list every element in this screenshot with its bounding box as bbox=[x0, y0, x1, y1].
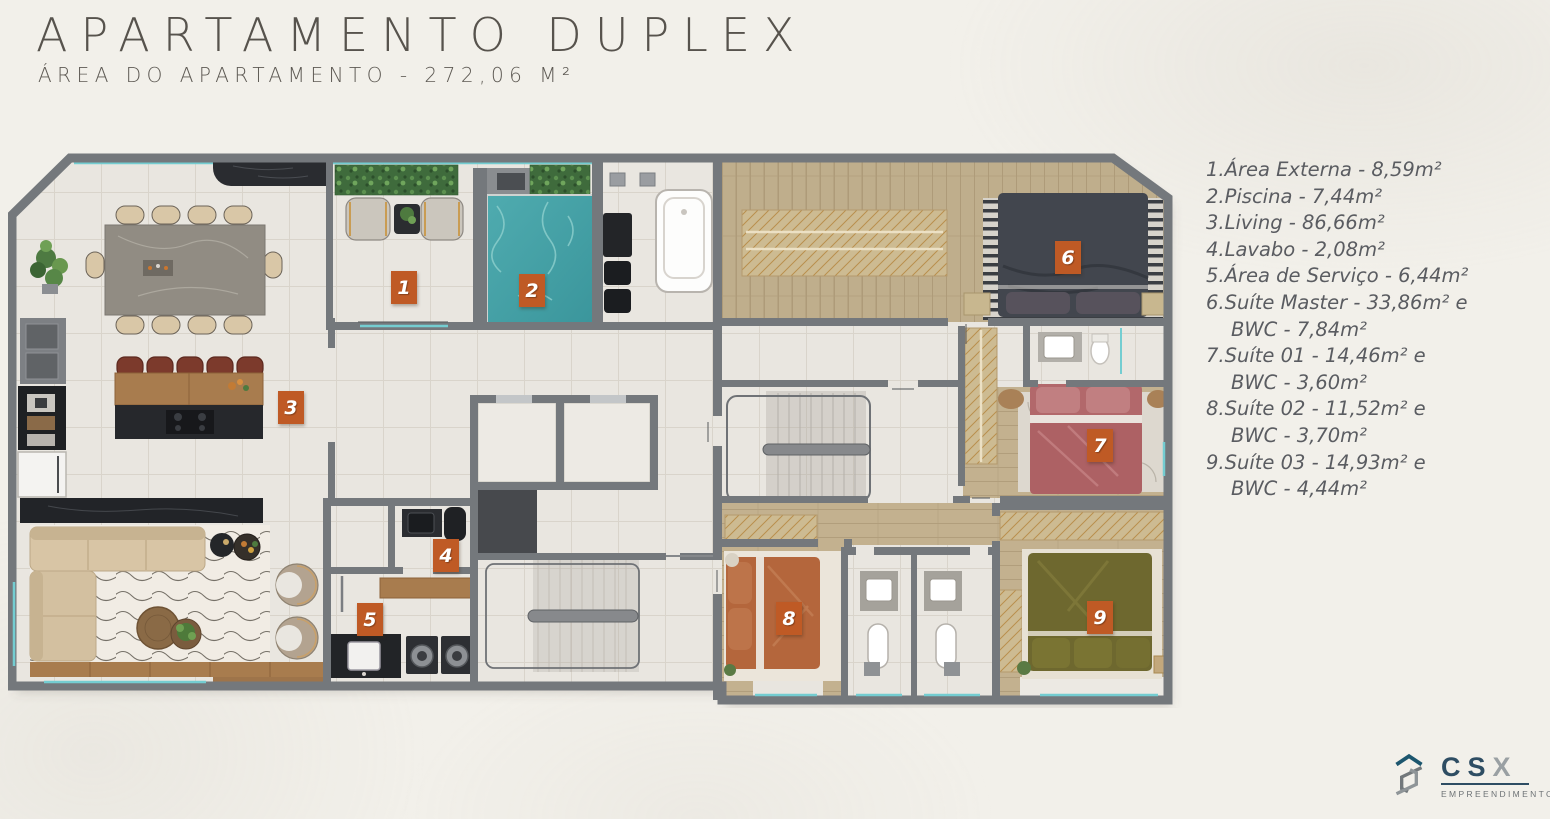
csx-logo-x: X bbox=[1493, 752, 1518, 782]
csx-logo-brand: CSX bbox=[1441, 753, 1550, 781]
room-badge-1: 1 bbox=[391, 271, 417, 304]
floor-plan: 1 2 3 4 5 6 7 8 9 bbox=[8, 146, 1183, 708]
room-badge-3: 3 bbox=[278, 391, 304, 424]
kitchen-island bbox=[115, 357, 263, 439]
room-badge-5: 5 bbox=[357, 603, 383, 636]
room-badge-7: 7 bbox=[1087, 429, 1113, 462]
legend-line-bwc: BWC - 4,44m² bbox=[1206, 476, 1550, 503]
csx-logo-rule bbox=[1441, 783, 1529, 785]
legend-line: 1.Área Externa - 8,59m² bbox=[1206, 157, 1550, 184]
room-legend: 1.Área Externa - 8,59m²2.Piscina - 7,44m… bbox=[1206, 157, 1550, 503]
room-badge-6: 6 bbox=[1055, 241, 1081, 274]
room-badge-2: 2 bbox=[519, 274, 545, 307]
csx-logo: CSX EMPREENDIMENTOS bbox=[1386, 750, 1550, 802]
legend-line: 3.Living - 86,66m² bbox=[1206, 210, 1550, 237]
page-title: APARTAMENTO DUPLEX bbox=[36, 8, 807, 62]
room-badge-9: 9 bbox=[1087, 601, 1113, 634]
legend-list: 1.Área Externa - 8,59m²2.Piscina - 7,44m… bbox=[1206, 157, 1550, 503]
sofa-lounge bbox=[30, 525, 270, 665]
lavabo bbox=[402, 507, 466, 541]
legend-line: 6.Suíte Master - 33,86m² e bbox=[1206, 290, 1550, 317]
page-subtitle: ÁREA DO APARTAMENTO - 272,06 M² bbox=[38, 63, 576, 87]
legend-line: 5.Área de Serviço - 6,44m² bbox=[1206, 263, 1550, 290]
legend-line-bwc: BWC - 7,84m² bbox=[1206, 317, 1550, 344]
legend-line: 8.Suíte 02 - 11,52m² e bbox=[1206, 396, 1550, 423]
floor-plan-drawing bbox=[8, 146, 1183, 708]
dining-set bbox=[86, 206, 282, 334]
legend-line: 9.Suíte 03 - 14,93m² e bbox=[1206, 450, 1550, 477]
csx-logo-cs: CS bbox=[1441, 752, 1493, 782]
legend-line: 7.Suíte 01 - 14,46m² e bbox=[1206, 343, 1550, 370]
room-badge-8: 8 bbox=[776, 602, 802, 635]
legend-line-bwc: BWC - 3,60m² bbox=[1206, 370, 1550, 397]
legend-line-bwc: BWC - 3,70m² bbox=[1206, 423, 1550, 450]
suite-03 bbox=[994, 512, 1168, 679]
legend-line: 4.Lavabo - 2,08m² bbox=[1206, 237, 1550, 264]
csx-logo-mark bbox=[1386, 750, 1432, 802]
room-badge-4: 4 bbox=[433, 539, 459, 572]
csx-logo-tagline: EMPREENDIMENTOS bbox=[1441, 789, 1550, 799]
legend-line: 2.Piscina - 7,44m² bbox=[1206, 184, 1550, 211]
